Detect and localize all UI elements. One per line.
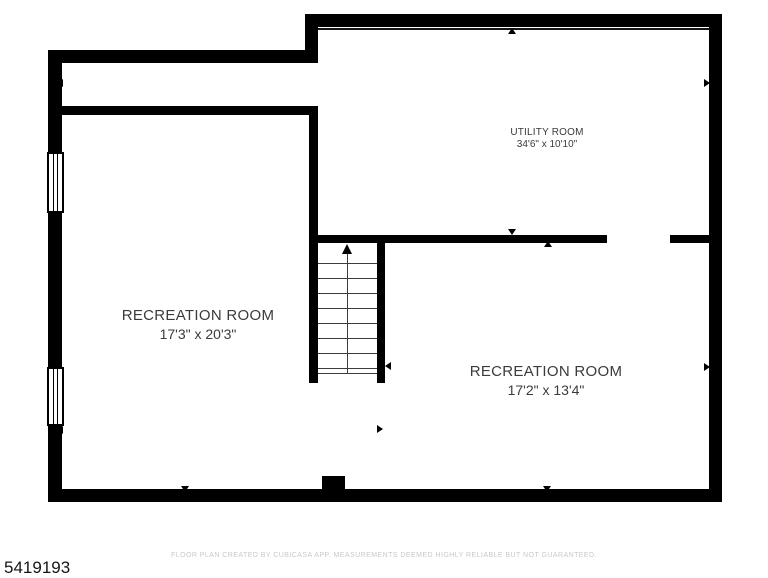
window-icon [47, 367, 64, 426]
wall-utility-bottom-left-segment [309, 235, 607, 243]
stair-tread [318, 373, 377, 374]
marker-icon [508, 229, 516, 235]
wall-left [48, 50, 62, 502]
disclaimer-text: FLOOR PLAN CREATED BY CUBICASA APP. MEAS… [0, 552, 768, 559]
room-dimensions: 17'3" x 20'3" [78, 326, 318, 342]
marker-icon [57, 79, 63, 87]
room-label-recreation-right: RECREATION ROOM 17'2" x 13'4" [426, 363, 666, 398]
room-dimensions: 34'6" x 10'10" [467, 139, 627, 150]
wall-top-left [48, 50, 318, 63]
wall-stairs-right [377, 235, 385, 383]
chimney-block [322, 476, 345, 489]
room-label-utility: UTILITY ROOM 34'6" x 10'10" [467, 127, 627, 150]
marker-icon [543, 486, 551, 492]
marker-icon [57, 426, 63, 434]
stairs-icon [318, 243, 377, 383]
room-dimensions: 17'2" x 13'4" [426, 382, 666, 398]
room-label-recreation-left: RECREATION ROOM 17'3" x 20'3" [78, 307, 318, 342]
marker-icon [182, 109, 190, 115]
wall-top-utility [305, 14, 722, 27]
listing-id: 5419193 [4, 558, 70, 578]
marker-icon [377, 425, 383, 433]
marker-icon [385, 362, 391, 370]
marker-icon [181, 486, 189, 492]
stair-direction-line [347, 254, 348, 373]
wall-bottom [48, 489, 722, 502]
window-pane [53, 154, 58, 211]
wall-utility-bottom-right-segment [670, 235, 709, 243]
marker-icon [508, 28, 516, 34]
marker-icon [704, 79, 710, 87]
room-name: UTILITY ROOM [467, 127, 627, 138]
window-icon [47, 152, 64, 213]
marker-icon [544, 241, 552, 247]
floor-plan: UTILITY ROOM 34'6" x 10'10" RECREATION R… [0, 0, 768, 576]
window-pane [53, 369, 58, 424]
marker-icon [704, 363, 710, 371]
stairs-up-arrow-icon [342, 244, 352, 254]
room-name: RECREATION ROOM [78, 307, 318, 324]
wall-right [709, 14, 722, 502]
room-name: RECREATION ROOM [426, 363, 666, 380]
